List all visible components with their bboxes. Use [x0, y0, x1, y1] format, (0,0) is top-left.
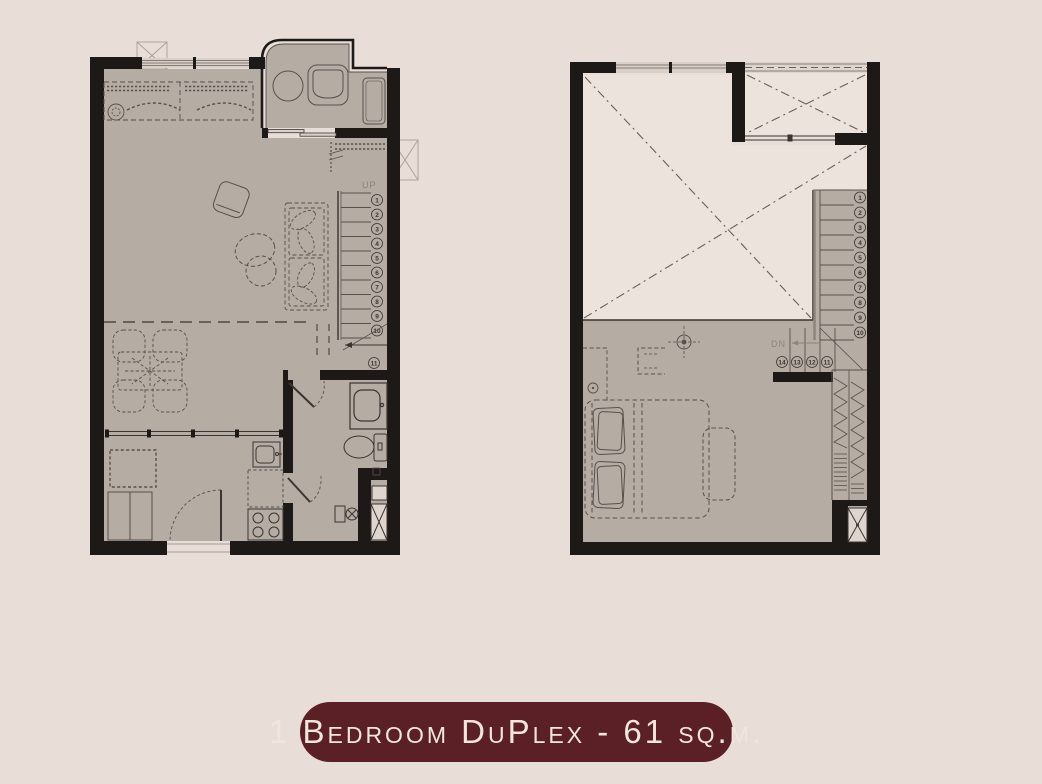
void-railing-inner: [745, 135, 835, 141]
first-floor-plan: UP 1 2 3: [85, 28, 425, 568]
svg-text:1: 1: [858, 195, 862, 202]
svg-text:5: 5: [858, 255, 862, 262]
void-railing-top: [745, 62, 867, 73]
svg-text:8: 8: [375, 299, 379, 306]
balcony-sliding-door: [268, 130, 336, 137]
floorplan-sheet: UP 1 2 3: [0, 0, 1042, 784]
svg-text:2: 2: [375, 212, 379, 219]
svg-text:11: 11: [824, 359, 831, 366]
svg-text:5: 5: [375, 255, 379, 262]
svg-text:9: 9: [375, 313, 379, 320]
bedroom-floor: [583, 320, 867, 542]
svg-text:13: 13: [793, 359, 801, 366]
svg-text:12: 12: [808, 359, 816, 366]
svg-text:6: 6: [858, 270, 862, 277]
svg-text:9: 9: [858, 315, 862, 322]
plan-title: 1 Bedroom DuPlex - 61 sq.m.: [269, 713, 764, 751]
svg-text:1: 1: [375, 197, 379, 204]
svg-text:6: 6: [375, 270, 379, 277]
svg-text:7: 7: [375, 284, 379, 291]
living-window: [138, 57, 253, 69]
dn-label: DN: [771, 339, 786, 349]
svg-text:3: 3: [858, 225, 862, 232]
up-label: UP: [362, 180, 377, 190]
svg-text:14: 14: [778, 359, 786, 366]
svg-text:3: 3: [375, 226, 379, 233]
svg-text:8: 8: [858, 300, 862, 307]
second-floor-plan: 1 2 3 4 5 6 7 8 9 10 DN: [558, 50, 888, 560]
plan-title-badge: 1 Bedroom DuPlex - 61 sq.m.: [300, 702, 733, 762]
balcony-floor: [266, 44, 387, 128]
svg-text:4: 4: [858, 240, 862, 247]
svg-text:2: 2: [858, 210, 862, 217]
first-floor-area: [104, 69, 387, 541]
svg-text:10: 10: [856, 330, 864, 337]
shaft: [848, 508, 867, 542]
svg-text:4: 4: [375, 241, 379, 248]
svg-text:11: 11: [371, 360, 378, 367]
bathroom-shaft: [371, 486, 387, 540]
svg-text:7: 7: [858, 285, 862, 292]
bedroom-window: [612, 62, 730, 73]
